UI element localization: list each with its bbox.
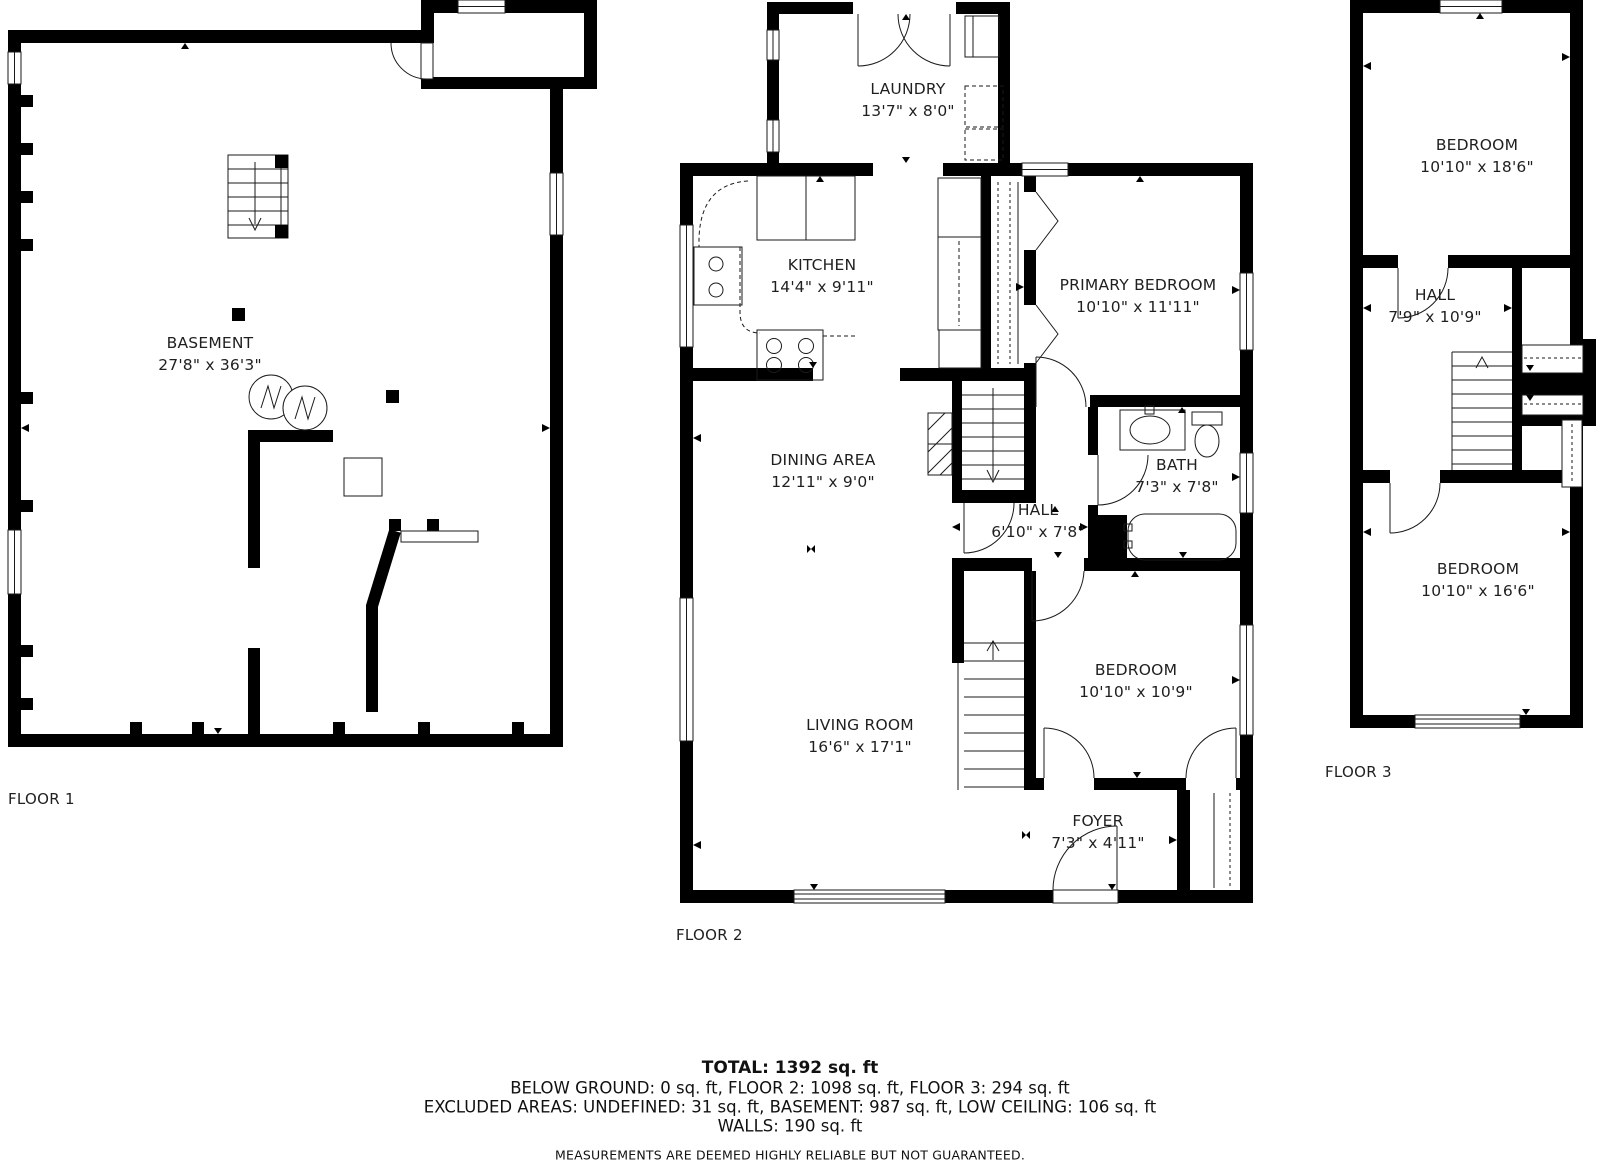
floor3-plan: [1350, 0, 1596, 728]
floor3-caption: FLOOR 3: [1325, 763, 1392, 781]
room-name: DINING AREA: [770, 449, 875, 471]
floorplan-page: BASEMENT 27'8" x 36'3" KITCHEN 14'4" x 9…: [0, 0, 1600, 1163]
floor2-walls: [680, 2, 1253, 903]
floor1-caption: FLOOR 1: [8, 790, 75, 808]
room-label-hall-upper: HALL 7'9" x 10'9": [1388, 284, 1482, 328]
room-name: LAUNDRY: [861, 78, 955, 100]
room-dims: 10'10" x 11'11": [1060, 296, 1217, 318]
floor2-stairs-up: [958, 641, 1024, 790]
room-label-primary-bedroom: PRIMARY BEDROOM 10'10" x 11'11": [1060, 274, 1217, 318]
floor2-stairs-down: [962, 388, 1024, 482]
room-name: HALL: [1388, 284, 1482, 306]
fridge-icon: [938, 178, 981, 237]
room-dims: 10'10" x 10'9": [1079, 681, 1193, 703]
floor2-caption: FLOOR 2: [676, 926, 743, 944]
room-label-bedroom-upper: BEDROOM 10'10" x 18'6": [1420, 134, 1534, 178]
toilet-icon: [1192, 412, 1222, 425]
room-label-dining-area: DINING AREA 12'11" x 9'0": [770, 449, 875, 493]
floor2-chimney: [928, 413, 952, 475]
floor1-water-heater-icon: [249, 375, 327, 430]
summary-excluded: EXCLUDED AREAS: UNDEFINED: 31 sq. ft, BA…: [424, 1098, 1156, 1117]
room-name: BEDROOM: [1421, 558, 1535, 580]
room-dims: 7'3" x 7'8": [1135, 476, 1218, 498]
floor1-door: [391, 43, 433, 79]
room-name: FOYER: [1051, 810, 1145, 832]
summary-floors: BELOW GROUND: 0 sq. ft, FLOOR 2: 1098 sq…: [510, 1079, 1070, 1098]
bifold-door-icon: [1036, 305, 1058, 363]
room-dims: 12'11" x 9'0": [770, 471, 875, 493]
room-name: BEDROOM: [1079, 659, 1193, 681]
room-name: BATH: [1135, 454, 1218, 476]
floor1-angled-wall: [372, 531, 395, 712]
room-label-laundry: LAUNDRY 13'7" x 8'0": [861, 78, 955, 122]
room-name: HALL: [991, 499, 1085, 521]
summary-walls: WALLS: 190 sq. ft: [718, 1117, 863, 1136]
floor2-entry-closet: [1214, 793, 1230, 888]
room-label-hall: HALL 6'10" x 7'8": [991, 499, 1085, 543]
room-name: BASEMENT: [158, 332, 262, 354]
floor2-french-doors: [853, 2, 956, 66]
room-name: LIVING ROOM: [806, 714, 914, 736]
floor1-walls: [8, 0, 597, 747]
floor1-plan: [8, 0, 597, 747]
room-dims: 27'8" x 36'3": [158, 354, 262, 376]
room-name: PRIMARY BEDROOM: [1060, 274, 1217, 296]
floor2-plan: [680, 2, 1253, 903]
room-dims: 13'7" x 8'0": [861, 100, 955, 122]
floorplan-drawing: [0, 0, 1600, 1163]
room-label-foyer: FOYER 7'3" x 4'11": [1051, 810, 1145, 854]
floor1-windows: [8, 0, 563, 594]
room-label-basement: BASEMENT 27'8" x 36'3": [158, 332, 262, 376]
room-label-bedroom: BEDROOM 10'10" x 10'9": [1079, 659, 1193, 703]
floor1-workbench: [401, 531, 478, 542]
room-dims: 16'6" x 17'1": [806, 736, 914, 758]
room-dims: 10'10" x 16'6": [1421, 580, 1535, 602]
room-dims: 14'4" x 9'11": [770, 276, 874, 298]
floor3-stairs: [1452, 352, 1512, 470]
room-name: BEDROOM: [1420, 134, 1534, 156]
room-dims: 10'10" x 18'6": [1420, 156, 1534, 178]
room-label-kitchen: KITCHEN 14'4" x 9'11": [770, 254, 874, 298]
floor1-utility-box: [344, 458, 382, 496]
room-name: KITCHEN: [770, 254, 874, 276]
bifold-door-icon: [1036, 192, 1058, 250]
room-label-bedroom-upper-2: BEDROOM 10'10" x 16'6": [1421, 558, 1535, 602]
floor2-laundry-fixtures: [965, 16, 1003, 160]
floor3-windows: [1415, 0, 1520, 728]
room-label-living-room: LIVING ROOM 16'6" x 17'1": [806, 714, 914, 758]
room-label-bath: BATH 7'3" x 7'8": [1135, 454, 1218, 498]
room-dims: 7'9" x 10'9": [1388, 306, 1482, 328]
room-dims: 7'3" x 4'11": [1051, 832, 1145, 854]
floor1-stairs: [228, 155, 288, 238]
summary-total: TOTAL: 1392 sq. ft: [702, 1058, 878, 1078]
room-dims: 6'10" x 7'8": [991, 521, 1085, 543]
summary-disclaimer: MEASUREMENTS ARE DEEMED HIGHLY RELIABLE …: [555, 1148, 1025, 1163]
